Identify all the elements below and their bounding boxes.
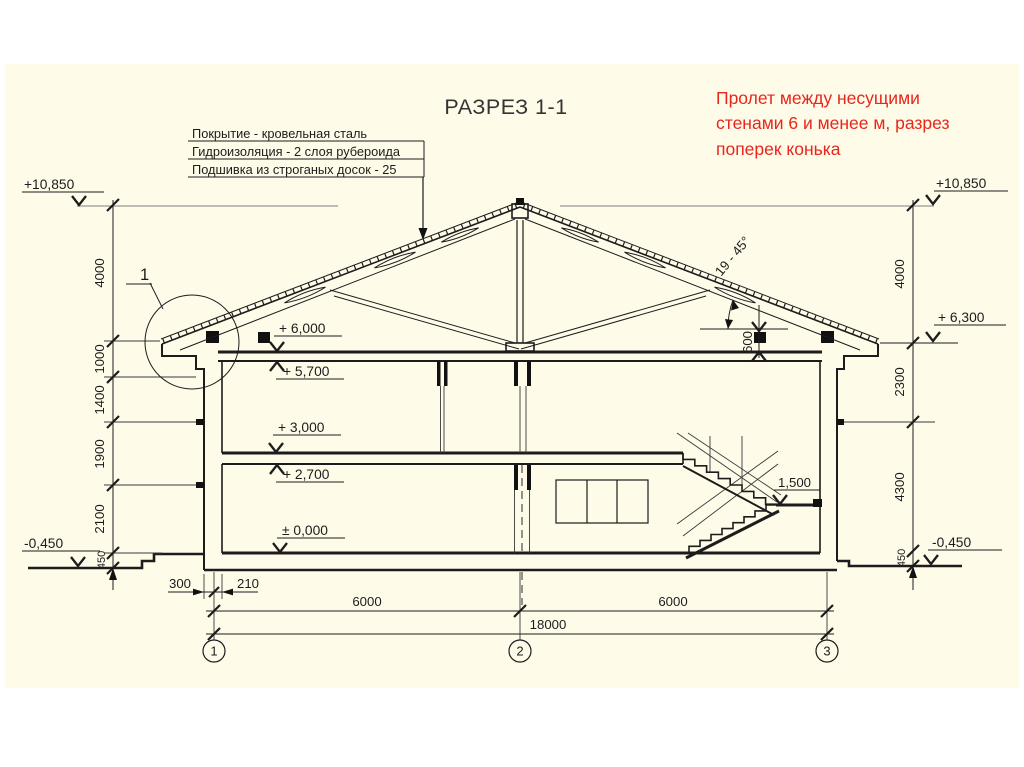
left-wall-ledge-upper	[196, 419, 204, 425]
dim-left-1400: 1400	[92, 385, 107, 414]
ridge-bolt	[516, 198, 524, 205]
slide-page: РАЗРЕЗ 1-1 Покрытие - кровельная сталь Г…	[0, 0, 1024, 767]
level-attic-floor-value: + 6,000	[279, 321, 326, 336]
page-title: РАЗРЕЗ 1-1	[444, 95, 567, 119]
axis-label-3: 3	[823, 644, 830, 659]
dim-right-450: 450	[896, 549, 908, 567]
level-right-top-value: +10,850	[936, 176, 987, 191]
right-wall-ledge	[837, 419, 844, 425]
landing-level-value: 1,500	[778, 475, 811, 490]
dim-left-450: 450	[96, 551, 108, 569]
dim-wall-210: 210	[237, 576, 259, 591]
dim-right-2300: 2300	[892, 367, 907, 396]
dim-left-1000: 1000	[92, 344, 107, 373]
dim-left-2100: 2100	[92, 504, 107, 533]
level-grade-right-value: -0,450	[932, 535, 971, 550]
level-right-eave-value: + 6,300	[938, 310, 985, 325]
level-left-top-value: +10,850	[24, 177, 75, 192]
dim-wall-300: 300	[169, 576, 191, 591]
level-grade-left-value: -0,450	[24, 536, 63, 551]
axis-label-1: 1	[210, 644, 217, 659]
dim-left-1900: 1900	[92, 439, 107, 468]
dim-left-4000: 4000	[92, 258, 107, 287]
roof-spec-line-2: Гидроизоляция - 2 слоя рубероида	[192, 144, 401, 159]
level-second-floor-value: + 3,000	[278, 420, 325, 435]
dim-right-4300: 4300	[892, 472, 907, 501]
purlin-node-left	[258, 332, 270, 343]
dim-span-1: 6000	[352, 594, 381, 609]
purlin-node-right	[754, 332, 766, 343]
left-wall-ledge-lower	[196, 482, 204, 488]
axis-label-2: 2	[516, 644, 523, 659]
red-annotation-note: Пролет между несущими стенами 6 и менее …	[716, 86, 970, 162]
level-ground-floor-value: ± 0,000	[282, 523, 328, 538]
dim-total-18000: 18000	[530, 617, 567, 632]
dim-right-4000: 4000	[892, 259, 907, 288]
landing-wall-anchor	[813, 499, 822, 507]
level-first-ceiling-value: + 2,700	[283, 467, 330, 482]
level-upper-ceiling-value: + 5,700	[283, 364, 330, 379]
dim-span-2: 6000	[658, 594, 687, 609]
detail-marker-label: 1	[140, 266, 149, 284]
dim-mauerlat-600: 600	[740, 331, 755, 353]
roof-spec-line-1: Покрытие - кровельная сталь	[192, 126, 367, 141]
roof-spec-line-3: Подшивка из строганых досок - 25	[192, 162, 397, 177]
